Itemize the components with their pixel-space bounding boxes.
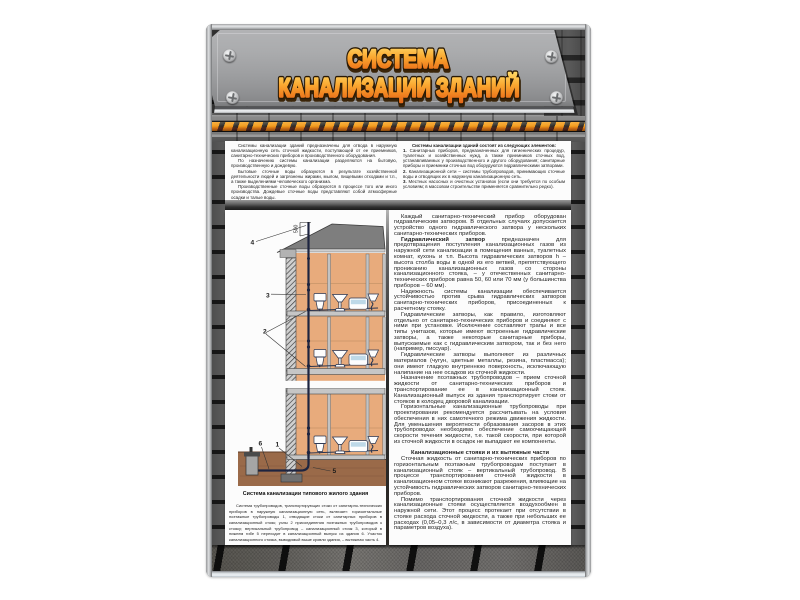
svg-text:5: 5 <box>333 468 337 475</box>
svg-text:1: 1 <box>276 442 280 449</box>
svg-text:6: 6 <box>259 441 263 448</box>
svg-text:СИСТЕМА: СИСТЕМА <box>348 46 449 74</box>
svg-text:4: 4 <box>251 240 255 247</box>
svg-text:КАНАЛИЗАЦИИ ЗДАНИЙ: КАНАЛИЗАЦИИ ЗДАНИЙ <box>279 73 520 103</box>
svg-text:3: 3 <box>266 293 270 300</box>
